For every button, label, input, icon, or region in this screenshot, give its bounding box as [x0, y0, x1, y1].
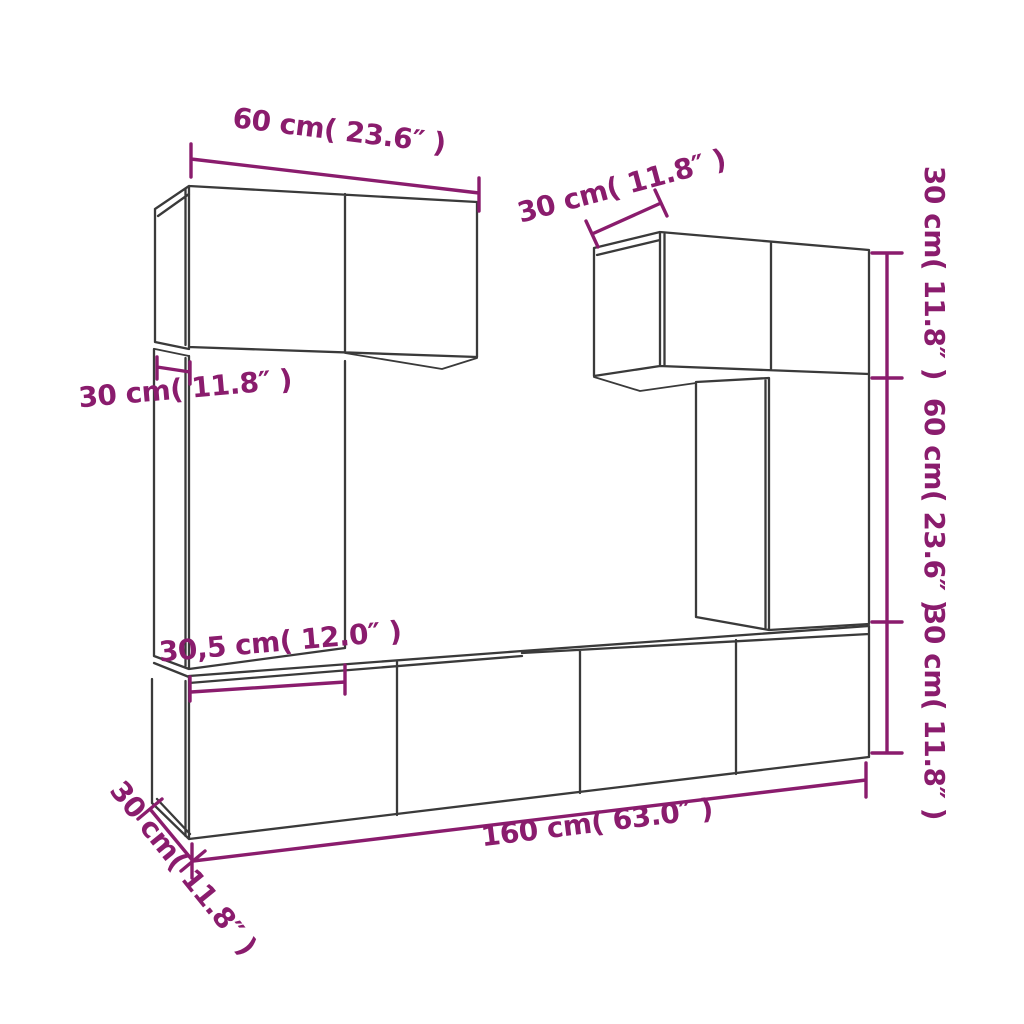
- dim-label-top-right-depth: 30 cm( 11.8″ ): [514, 142, 729, 229]
- dimension-labels: 60 cm( 23.6″ ) 30 cm( 11.8″ ) 30,5 cm( 1…: [77, 101, 951, 961]
- diagram-canvas: 60 cm( 23.6″ ) 30 cm( 11.8″ ) 30,5 cm( 1…: [0, 0, 1024, 1024]
- cabinet-top-right: [594, 232, 869, 391]
- dim-label-right-middle-height: 60 cm( 23.6″ ): [918, 398, 951, 612]
- dim-label-top-left-width: 60 cm( 23.6″ ): [231, 101, 448, 160]
- cabinet-top-left: [155, 186, 477, 369]
- dim-label-right-top-height: 30 cm( 11.8″ ): [918, 166, 951, 380]
- furniture-dimension-diagram: 60 cm( 23.6″ ) 30 cm( 11.8″ ) 30,5 cm( 1…: [0, 0, 1024, 1024]
- dim-label-bottom-left-depth: 30 cm( 11.8″ ): [103, 774, 263, 961]
- dim-label-bottom-width: 160 cm( 63.0″ ): [479, 792, 714, 853]
- dim-label-tall-cabinet-width: 30,5 cm( 12.0″ ): [158, 614, 403, 668]
- cabinet-right-column-body: [696, 374, 869, 630]
- dim-line-right-heights: [872, 253, 902, 753]
- cabinet-top-right-body: [594, 232, 869, 376]
- dim-label-right-bottom-height: 30 cm( 11.8″ ): [918, 606, 951, 820]
- cabinet-top-right-underside: [594, 377, 696, 391]
- furniture-outline: [152, 186, 869, 839]
- cabinet-right-column: [696, 374, 869, 630]
- cabinet-top-left-body: [155, 186, 477, 357]
